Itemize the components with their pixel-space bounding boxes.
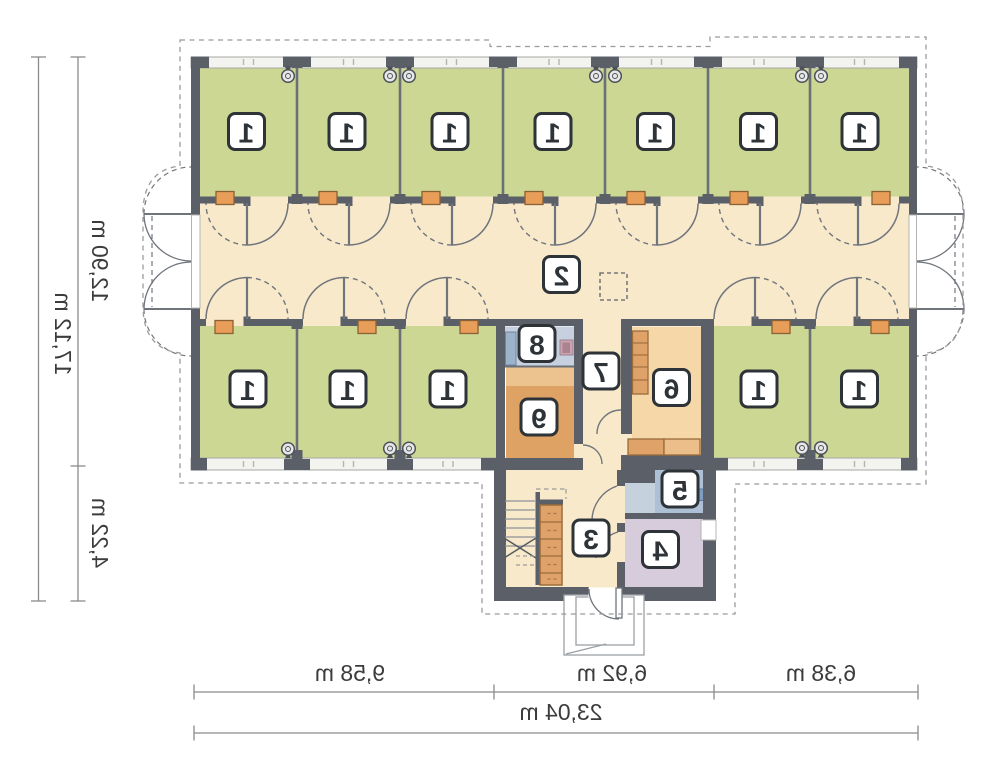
svg-text:1: 1 [648,118,664,149]
svg-text:5: 5 [672,475,688,506]
svg-text:7: 7 [593,357,609,388]
svg-text:9: 9 [531,403,547,434]
svg-text:1: 1 [852,375,868,406]
svg-text:1: 1 [852,118,868,149]
svg-text:4,22 m: 4,22 m [87,498,113,568]
svg-text:3: 3 [583,524,599,555]
svg-text:6,92 m: 6,92 m [577,660,647,686]
svg-text:1: 1 [339,118,355,149]
svg-text:6: 6 [664,374,680,405]
svg-text:4: 4 [652,536,668,567]
svg-text:1: 1 [440,375,456,406]
svg-text:9,58 m: 9,58 m [315,660,385,686]
svg-text:1: 1 [545,118,561,149]
svg-text:1: 1 [239,118,255,149]
svg-text:17,12 m: 17,12 m [50,292,76,375]
svg-text:1: 1 [751,375,767,406]
svg-text:1: 1 [751,118,767,149]
svg-text:8: 8 [529,330,545,361]
svg-text:1: 1 [340,375,356,406]
svg-text:6,38 m: 6,38 m [786,660,856,686]
svg-text:2: 2 [554,261,570,292]
svg-text:1: 1 [442,118,458,149]
svg-text:1: 1 [240,375,256,406]
svg-text:23,04 m: 23,04 m [519,699,602,725]
svg-text:12,90 m: 12,90 m [87,219,113,302]
